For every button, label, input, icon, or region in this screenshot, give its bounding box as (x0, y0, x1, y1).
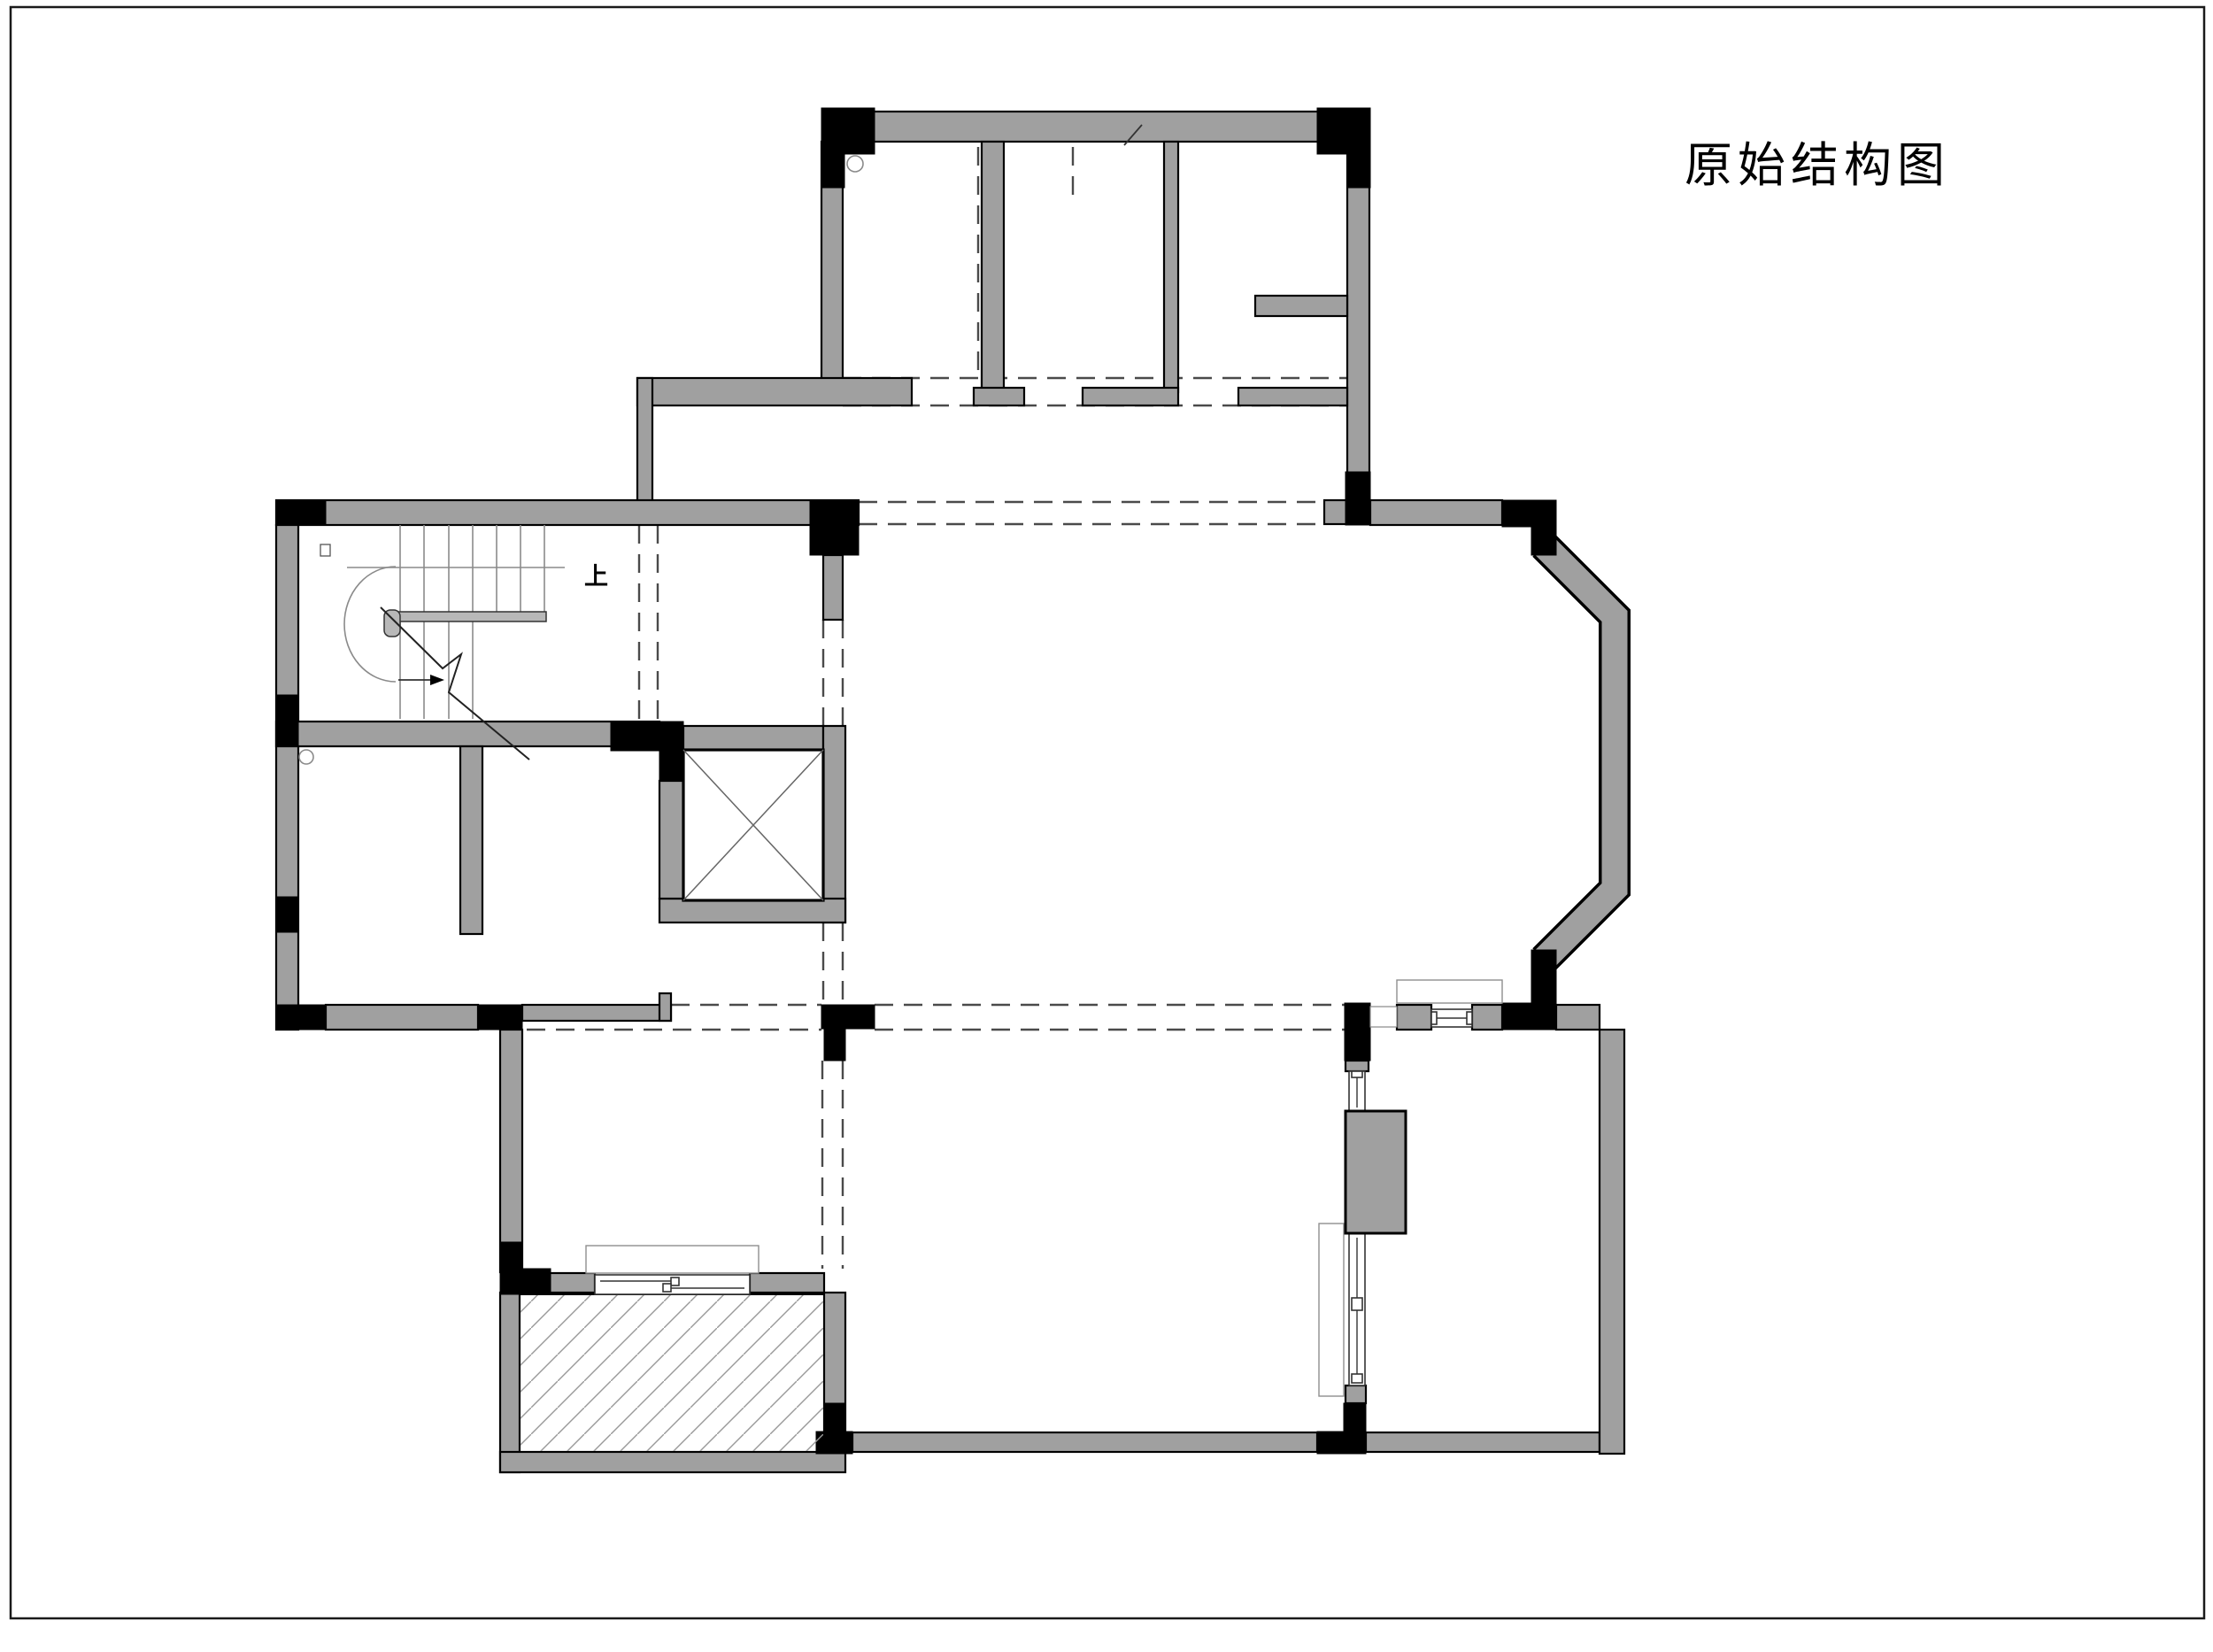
page-border (11, 7, 2204, 1618)
balcony-hatch (520, 1294, 824, 1452)
window-sill-band (586, 1246, 759, 1273)
window-vertical (1349, 1071, 1365, 1111)
drain-symbol (299, 750, 313, 764)
drawing-page: 上 (0, 0, 2213, 1652)
beam-lines (527, 147, 1347, 1269)
window-sill-band (1319, 1224, 1344, 1396)
sliding-window (595, 1275, 750, 1294)
elevator-shaft (683, 750, 823, 900)
wall-cabinet-fixture (1346, 1111, 1406, 1233)
fixtures (299, 125, 1406, 1233)
floor-plan-canvas: 上 (0, 0, 2213, 1652)
window-sill-band (1397, 980, 1502, 1003)
stair-up-label: 上 (584, 563, 608, 591)
door-opening (1370, 1007, 1397, 1027)
walls (276, 112, 1624, 1472)
stair-direction-arrow (430, 675, 444, 685)
stair-handrail (396, 612, 546, 621)
window-horizontal (1431, 1009, 1472, 1027)
window-vertical (1349, 1233, 1365, 1386)
drain-symbol (847, 156, 863, 172)
page-title: 原始结构图 (1685, 137, 1950, 193)
stair-door-mark (320, 544, 330, 556)
bay-window-wall (1544, 545, 1615, 960)
